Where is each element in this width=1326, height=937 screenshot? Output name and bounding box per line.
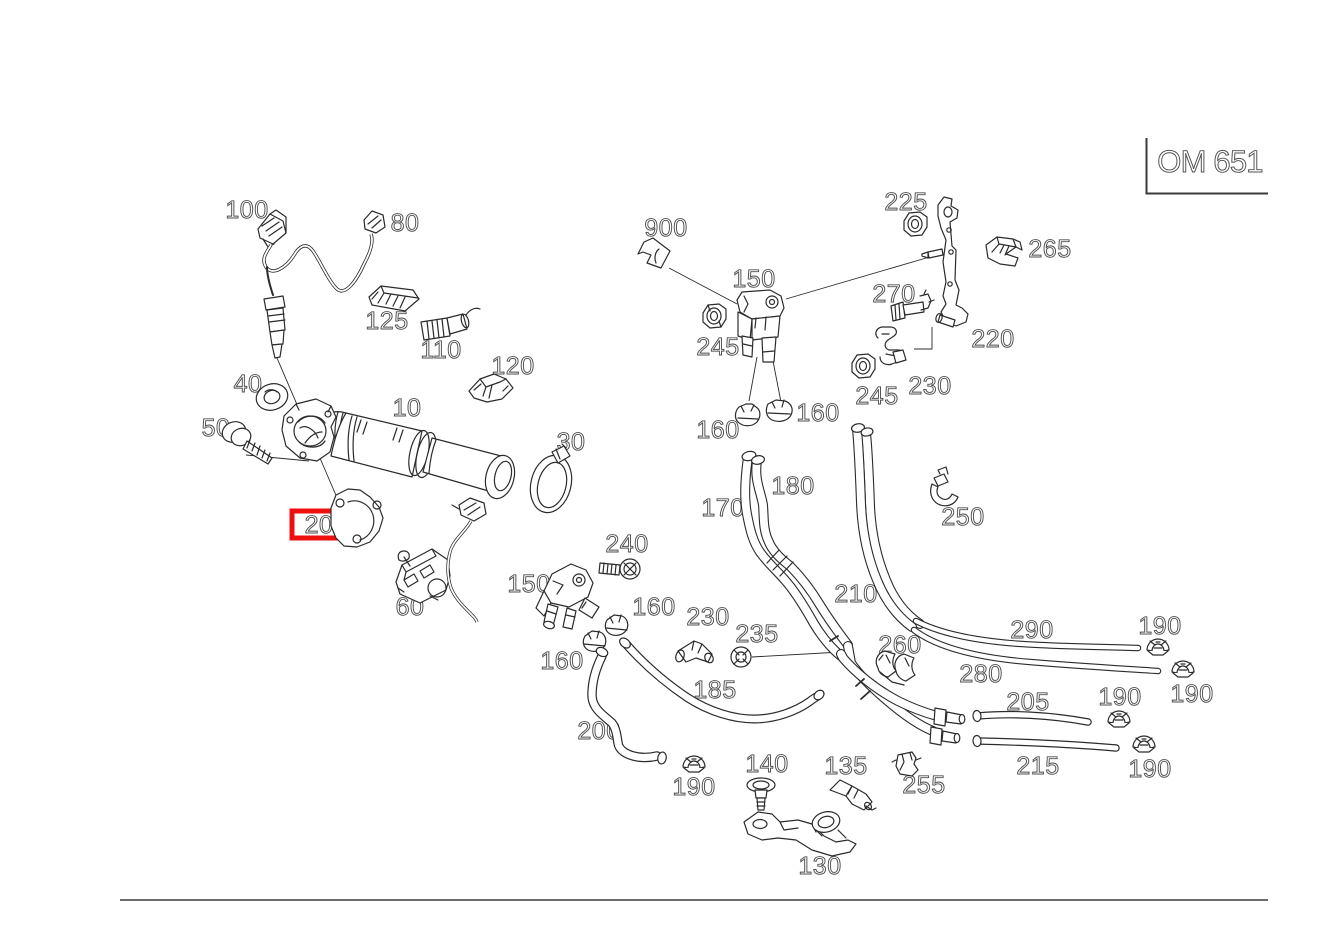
svg-text:160: 160 [796,399,839,427]
svg-text:160: 160 [696,416,739,444]
svg-text:OM 651: OM 651 [1157,144,1262,179]
svg-text:20: 20 [305,511,334,539]
svg-text:100: 100 [225,196,268,224]
svg-text:265: 265 [1028,235,1071,263]
svg-text:245: 245 [696,333,739,361]
svg-text:230: 230 [908,372,951,400]
svg-text:190: 190 [672,773,715,801]
svg-text:220: 220 [971,325,1014,353]
svg-text:900: 900 [644,214,687,242]
svg-text:190: 190 [1138,612,1181,640]
svg-text:80: 80 [391,209,420,237]
svg-text:190: 190 [1098,683,1141,711]
svg-text:210: 210 [834,580,877,608]
svg-text:150: 150 [732,265,775,293]
svg-text:130: 130 [798,852,841,880]
svg-text:225: 225 [884,188,927,216]
svg-text:190: 190 [1170,680,1213,708]
svg-text:125: 125 [365,307,408,335]
svg-text:230: 230 [686,603,729,631]
svg-text:135: 135 [824,752,867,780]
svg-text:280: 280 [959,660,1002,688]
svg-text:290: 290 [1010,616,1053,644]
svg-text:215: 215 [1016,752,1059,780]
svg-text:240: 240 [605,530,648,558]
svg-text:160: 160 [540,647,583,675]
svg-text:140: 140 [745,750,788,778]
svg-text:250: 250 [941,503,984,531]
svg-text:10: 10 [393,394,422,422]
svg-text:235: 235 [735,620,778,648]
svg-text:160: 160 [632,593,675,621]
svg-text:245: 245 [855,382,898,410]
svg-text:170: 170 [701,494,744,522]
svg-text:190: 190 [1128,755,1171,783]
svg-text:180: 180 [771,472,814,500]
